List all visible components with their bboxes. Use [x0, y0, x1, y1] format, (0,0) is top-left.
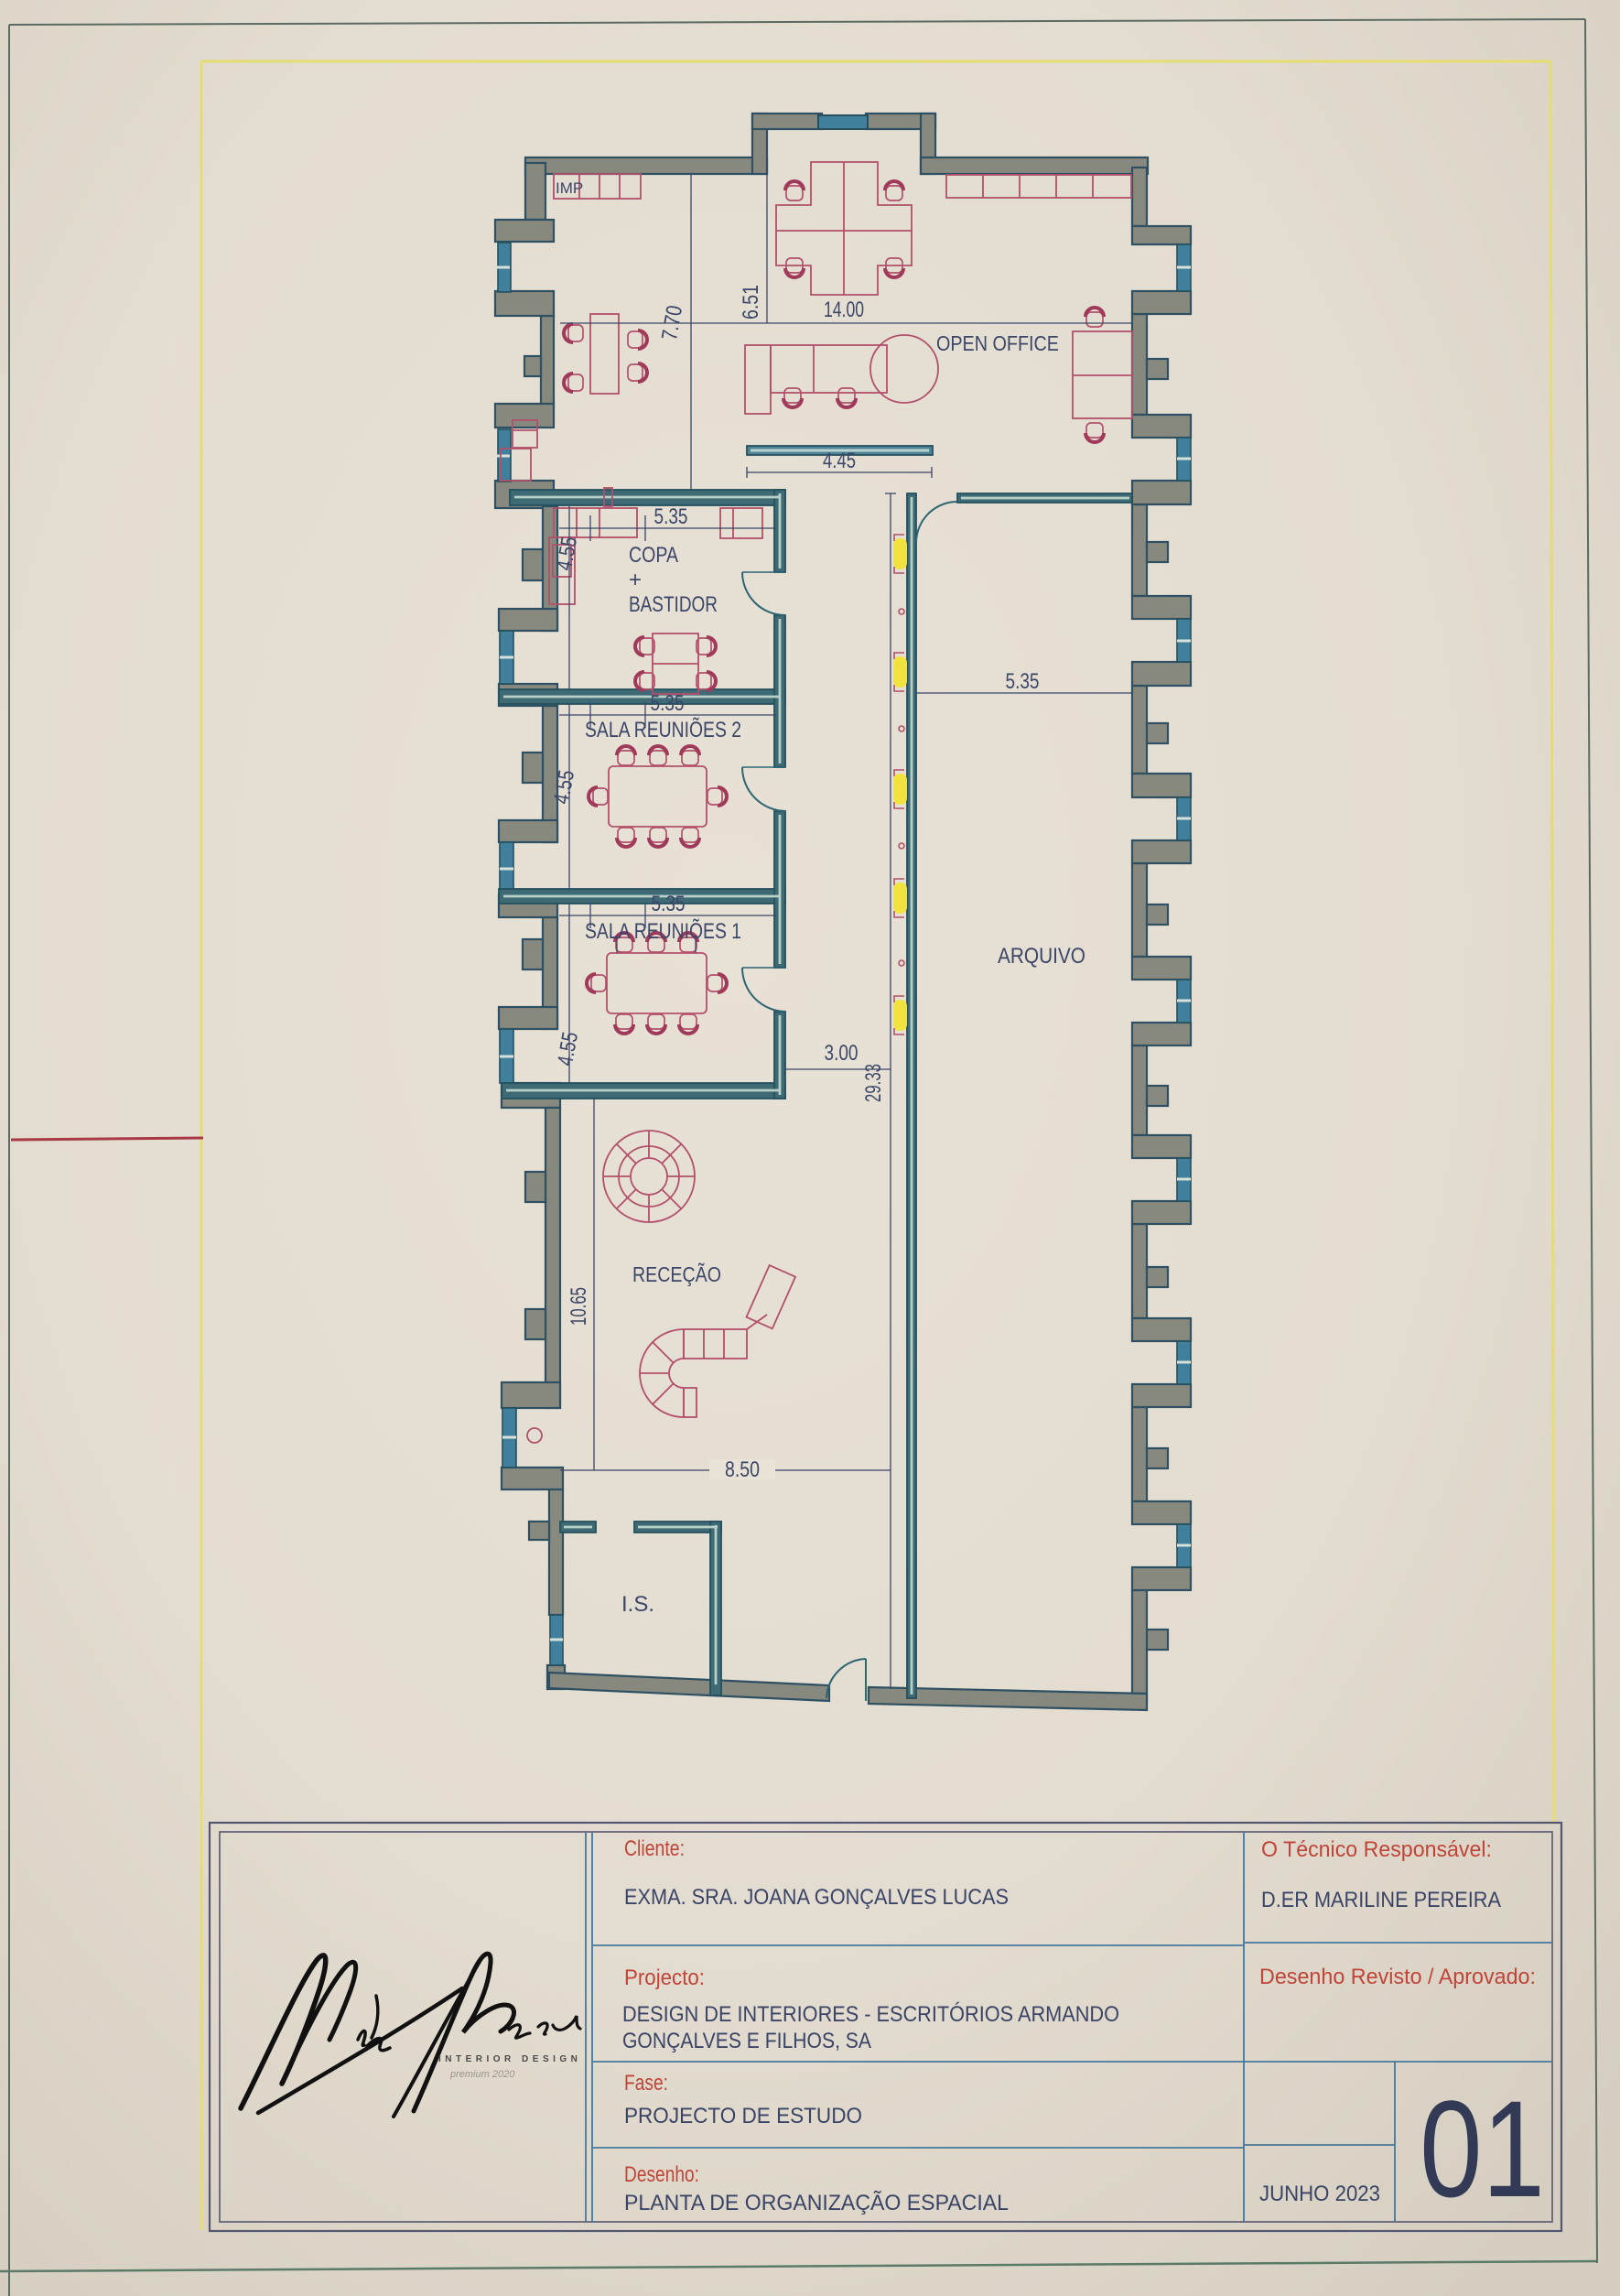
- svg-text:10.65: 10.65: [567, 1287, 591, 1326]
- svg-text:JUNHO 2023: JUNHO 2023: [1259, 2182, 1380, 2206]
- svg-text:PLANTA DE ORGANIZAÇÃO ESPACIAL: PLANTA DE ORGANIZAÇÃO ESPACIAL: [624, 2191, 1009, 2215]
- svg-text:SALA REUNIÕES 2: SALA REUNIÕES 2: [585, 717, 741, 742]
- svg-text:3.00: 3.00: [825, 1041, 859, 1066]
- svg-text:EXMA. SRA. JOANA GONÇALVES LUC: EXMA. SRA. JOANA GONÇALVES LUCAS: [624, 1885, 1009, 1910]
- svg-text:5.35: 5.35: [1006, 669, 1040, 694]
- svg-text:Cliente:: Cliente:: [624, 1836, 685, 1861]
- svg-text:SALA REUNIÕES 1: SALA REUNIÕES 1: [585, 918, 741, 944]
- svg-text:IMP: IMP: [556, 179, 583, 197]
- svg-text:RECEÇÃO: RECEÇÃO: [632, 1262, 721, 1286]
- svg-text:ARQUIVO: ARQUIVO: [998, 944, 1085, 969]
- svg-text:GONÇALVES E FILHOS, SA: GONÇALVES E FILHOS, SA: [622, 2029, 871, 2053]
- svg-text:Desenho Revisto / Aprovado:: Desenho Revisto / Aprovado:: [1259, 1965, 1536, 1989]
- svg-text:5.35: 5.35: [652, 892, 686, 916]
- svg-text:29.33: 29.33: [861, 1064, 886, 1102]
- svg-text:O Técnico Responsável:: O Técnico Responsável:: [1261, 1837, 1492, 1862]
- svg-text:5.35: 5.35: [651, 691, 685, 716]
- svg-text:14.00: 14.00: [824, 298, 864, 322]
- svg-text:PROJECTO DE ESTUDO: PROJECTO DE ESTUDO: [624, 2104, 862, 2128]
- svg-text:INTERIOR DESIGN: INTERIOR DESIGN: [438, 2054, 581, 2064]
- svg-text:COPA: COPA: [629, 543, 678, 568]
- svg-text:Fase:: Fase:: [624, 2071, 668, 2096]
- svg-text:premium 2020: premium 2020: [449, 2069, 515, 2080]
- svg-text:DESIGN DE INTERIORES - ESCRITÓ: DESIGN DE INTERIORES - ESCRITÓRIOS ARMAN…: [622, 2002, 1119, 2027]
- svg-text:4.45: 4.45: [823, 449, 856, 473]
- svg-text:D.ER MARILINE PEREIRA: D.ER MARILINE PEREIRA: [1261, 1888, 1501, 1912]
- svg-text:OPEN OFFICE: OPEN OFFICE: [936, 331, 1059, 355]
- svg-text:8.50: 8.50: [725, 1457, 760, 1482]
- svg-text:I.S.: I.S.: [621, 1592, 654, 1617]
- svg-text:Desenho:: Desenho:: [624, 2162, 699, 2187]
- svg-text:+: +: [629, 568, 642, 592]
- svg-text:01: 01: [1420, 2073, 1545, 2226]
- svg-text:BASTIDOR: BASTIDOR: [629, 592, 718, 617]
- svg-text:5.35: 5.35: [654, 504, 688, 529]
- svg-text:6.51: 6.51: [739, 285, 763, 319]
- svg-text:Projecto:: Projecto:: [624, 1966, 705, 1990]
